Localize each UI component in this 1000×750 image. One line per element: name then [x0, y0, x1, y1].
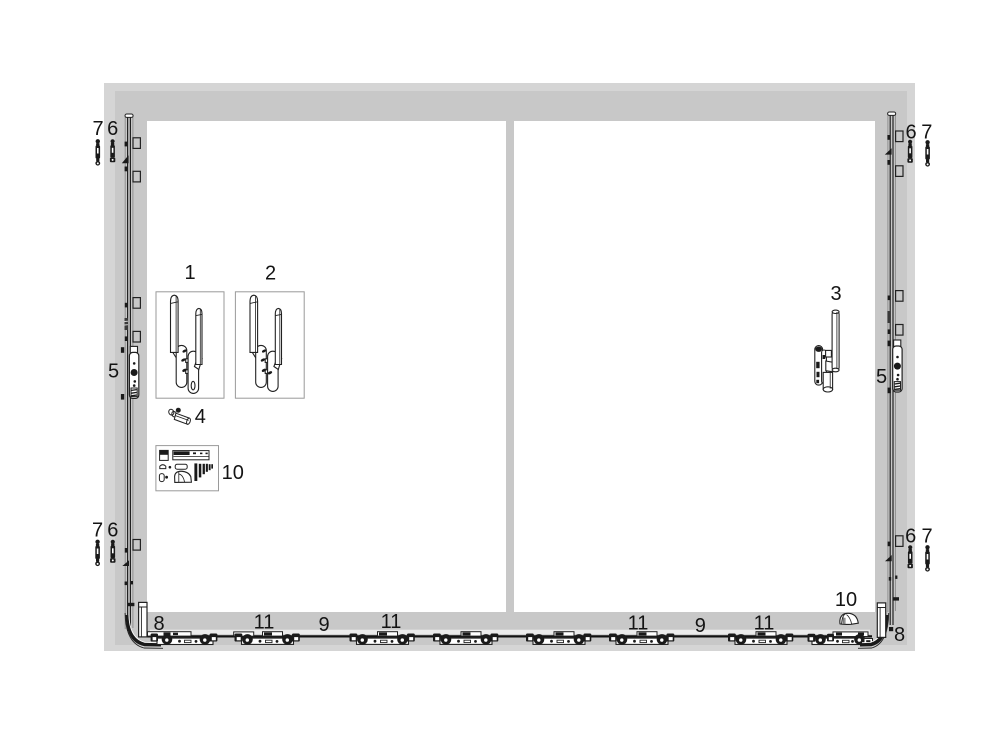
svg-text:8: 8	[153, 613, 164, 635]
svg-text:7: 7	[92, 118, 103, 140]
svg-text:10: 10	[222, 462, 244, 484]
svg-text:9: 9	[695, 615, 706, 637]
svg-text:1: 1	[184, 262, 195, 284]
svg-text:11: 11	[754, 613, 775, 635]
svg-text:2: 2	[265, 263, 276, 285]
svg-text:6: 6	[905, 122, 916, 144]
svg-text:6: 6	[107, 118, 118, 140]
svg-text:4: 4	[195, 406, 206, 428]
svg-text:7: 7	[921, 122, 932, 144]
svg-text:9: 9	[318, 614, 329, 636]
svg-text:5: 5	[108, 361, 119, 383]
svg-text:6: 6	[905, 526, 916, 548]
svg-text:3: 3	[830, 283, 841, 305]
svg-text:11: 11	[381, 611, 402, 633]
svg-text:10: 10	[835, 589, 857, 611]
svg-text:8: 8	[894, 624, 905, 646]
svg-text:7: 7	[92, 520, 103, 542]
svg-text:5: 5	[876, 366, 887, 388]
svg-text:6: 6	[107, 520, 118, 542]
svg-text:7: 7	[921, 526, 932, 548]
svg-text:11: 11	[254, 612, 275, 634]
svg-text:11: 11	[628, 613, 649, 635]
